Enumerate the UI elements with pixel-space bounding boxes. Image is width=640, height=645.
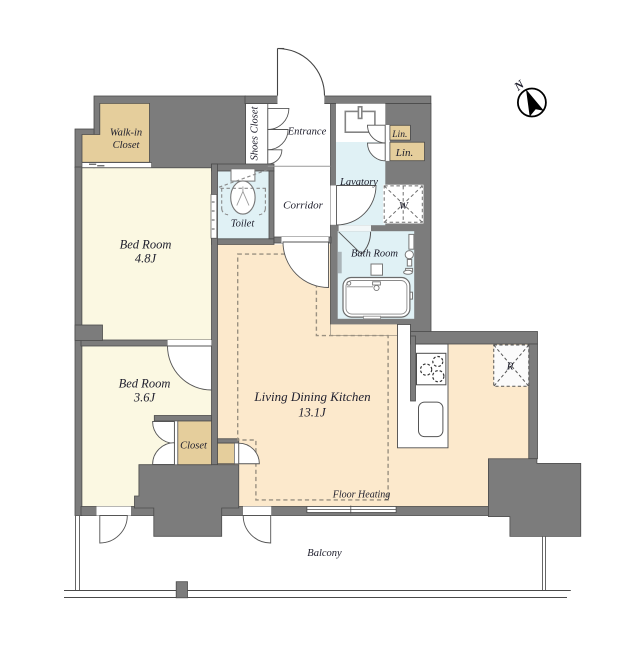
svg-text:Living Dining Kitchen: Living Dining Kitchen — [253, 389, 370, 404]
svg-text:W: W — [399, 200, 409, 212]
svg-text:Corridor: Corridor — [283, 200, 323, 212]
svg-text:R: R — [506, 361, 514, 373]
svg-text:Bath Room: Bath Room — [351, 249, 398, 260]
svg-text:Floor Heating: Floor Heating — [332, 490, 391, 501]
svg-text:N: N — [511, 76, 528, 94]
svg-text:Closet: Closet — [180, 441, 208, 452]
svg-text:Shoes Closet: Shoes Closet — [250, 105, 261, 160]
svg-text:4.8J: 4.8J — [135, 252, 158, 266]
svg-text:Entrance: Entrance — [287, 127, 327, 138]
svg-text:Balcony: Balcony — [307, 548, 342, 559]
svg-text:Closet: Closet — [113, 140, 141, 151]
svg-text:Bed Room: Bed Room — [119, 377, 171, 391]
svg-text:3.6J: 3.6J — [133, 391, 157, 405]
svg-text:Bed Room: Bed Room — [120, 238, 172, 252]
svg-text:13.1J: 13.1J — [298, 406, 327, 420]
svg-text:Lin.: Lin. — [391, 130, 407, 140]
svg-text:Lin.: Lin. — [395, 147, 413, 159]
svg-text:Lavatory: Lavatory — [339, 177, 378, 188]
svg-text:Toilet: Toilet — [231, 219, 256, 230]
svg-text:Walk-in: Walk-in — [110, 128, 142, 139]
